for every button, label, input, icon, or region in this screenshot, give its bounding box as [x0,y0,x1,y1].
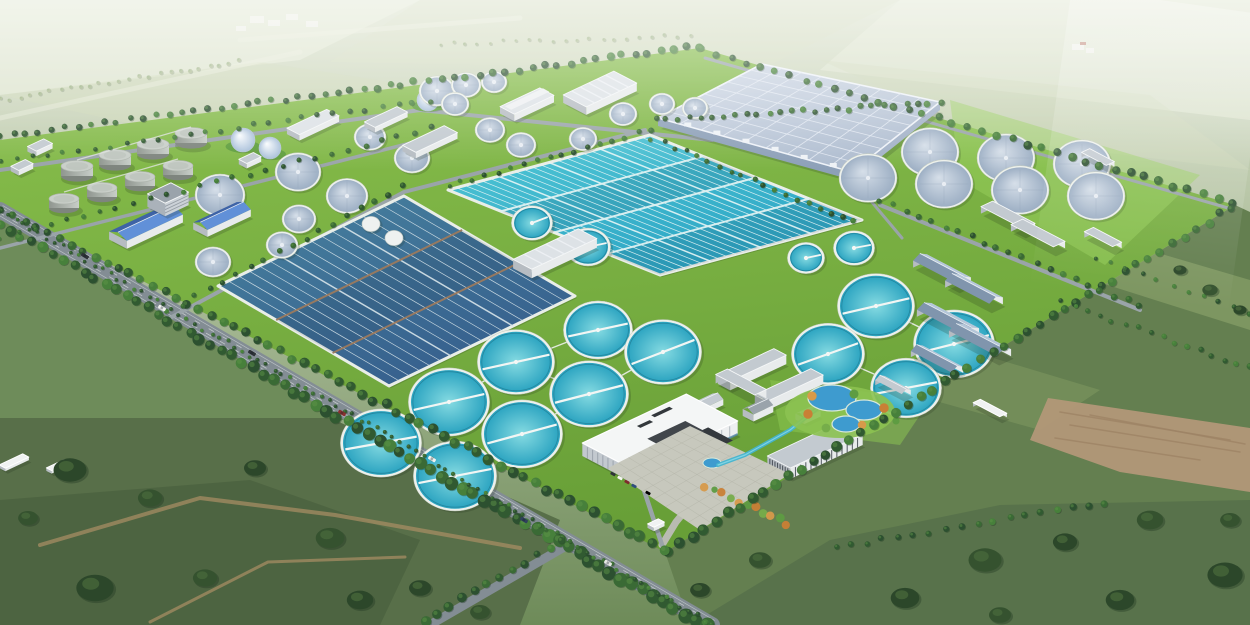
lid-center-hub [1018,188,1022,192]
digester-tank-dome [130,173,151,181]
garden-tree [892,417,899,424]
clarifier-hub [514,360,518,364]
lid-center-hub [218,193,222,197]
lid-center-hub [296,170,300,174]
clarifier-hub [874,304,878,308]
garden-tree [858,421,866,429]
clarifier-hub [587,392,591,396]
plaza-tree [766,512,774,520]
clarifier-hub [661,350,665,354]
garden-tree [849,389,858,398]
garden-tree [879,403,888,412]
garden-tree [803,409,812,418]
treatment-plant-aerial-rendering [0,0,1250,625]
plaza-tree [782,521,790,529]
lid-center-hub [942,182,946,186]
clarifier-hub [952,342,956,346]
plaza-tree [700,483,708,491]
clarifier-hub [826,352,830,356]
plaza-tree [776,514,785,523]
garden-pond [832,416,860,432]
plaza-tree [711,487,717,493]
clarifier-hub [596,328,600,332]
lid-center-hub [280,243,284,247]
clarifier-hub [530,221,534,225]
lid-center-hub [345,194,349,198]
digester-tank-dome [92,184,113,192]
digester-tank-dome [54,195,75,203]
plaza-tree [717,488,725,496]
clarifier-hub [520,432,524,436]
garden-tree [822,424,831,433]
lid-center-hub [211,260,215,264]
garden-tree [807,391,816,400]
clarifier-hub [447,400,451,404]
lid-center-hub [297,217,301,221]
clarifier-hub [804,256,808,260]
lid-center-hub [866,176,870,180]
plaza-tree [727,494,735,502]
screenshot-frame [0,0,1250,625]
clarifier-hub [852,246,856,250]
storage-tank [362,216,380,231]
storage-tank [385,230,403,245]
